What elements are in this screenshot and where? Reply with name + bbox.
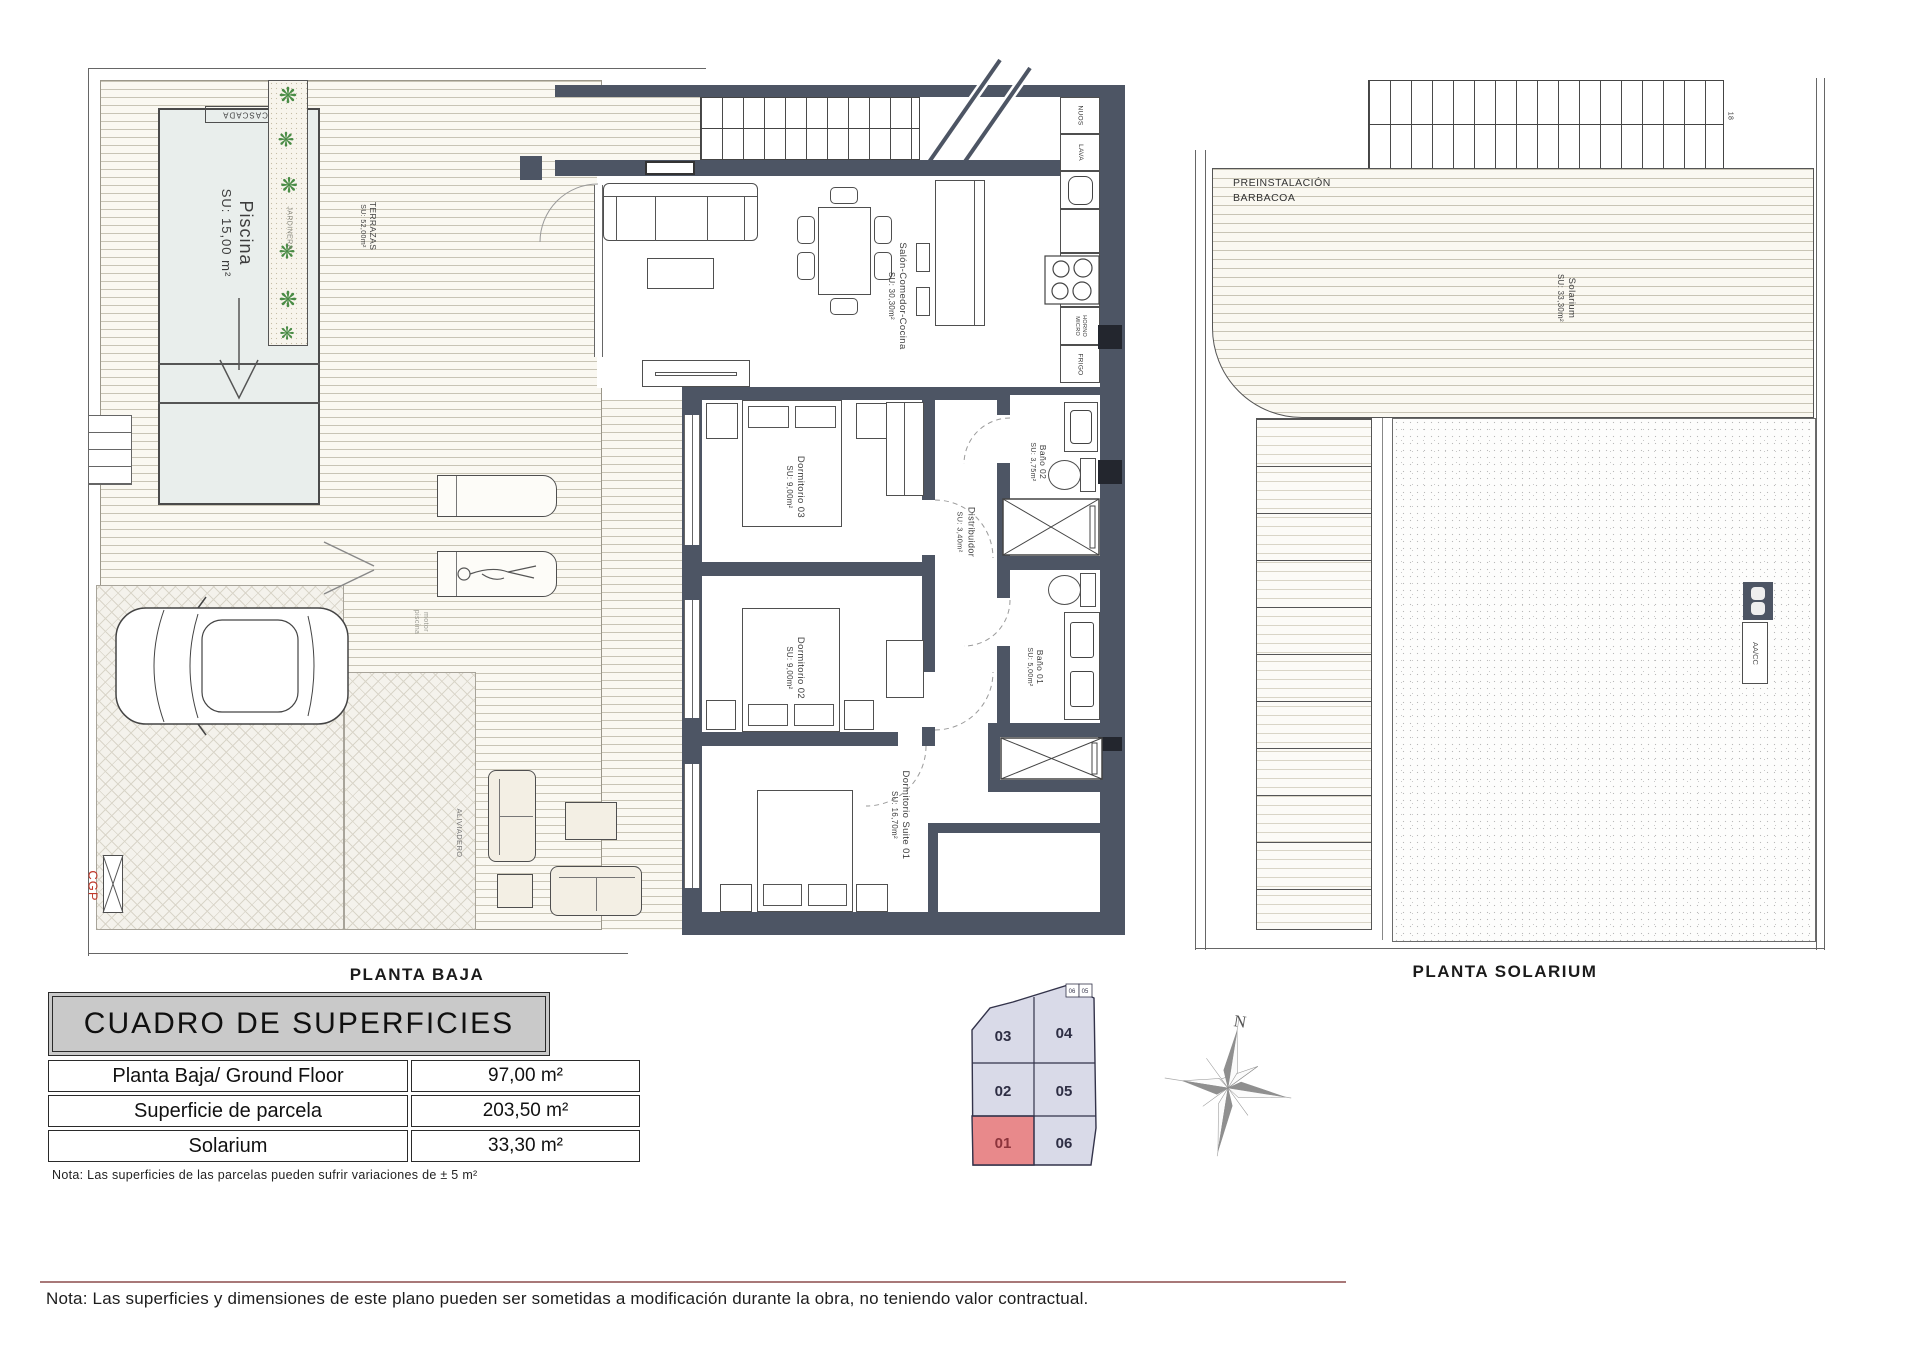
sun-lounger	[437, 475, 557, 517]
staircase-midline	[700, 128, 920, 129]
appliance-cell-secadora: NUOS	[1060, 97, 1100, 134]
dining-table	[818, 207, 871, 295]
living-south-window	[642, 360, 750, 387]
hob-icon	[1044, 255, 1100, 305]
room-label-solarium: Solarium SU: 33,30m²	[1555, 274, 1577, 322]
kitchen-counter-cell	[1060, 209, 1100, 253]
car-top-view	[112, 592, 352, 740]
pool-name: Piscina	[234, 200, 257, 265]
aliviadero-label: ALIVIADERO	[454, 808, 464, 857]
solarium-boundary-right	[1816, 78, 1817, 950]
dining-chair	[830, 298, 858, 315]
door-swing-arcs	[880, 360, 1140, 800]
nightstand	[706, 403, 738, 439]
solarium-boundary-left	[1195, 150, 1196, 950]
table-row-value: 97,00 m²	[411, 1060, 640, 1092]
exterior-steps	[88, 415, 132, 485]
pool-entry-arrow	[220, 298, 260, 406]
table-note: Nota: Las superficies de las parcelas pu…	[52, 1168, 478, 1182]
appliance-cell-horno: HORNO MICRO	[1060, 307, 1100, 345]
plot-boundary-left	[88, 68, 89, 956]
room-area: SU: 9,00m²	[784, 646, 794, 689]
plot-boundary-top	[88, 68, 706, 69]
room-area: SU: 33,30m²	[1555, 274, 1565, 322]
planta-solarium-title: PLANTA SOLARIUM	[1413, 962, 1598, 982]
person-figure	[452, 554, 552, 594]
unit-03: 03	[995, 1028, 1012, 1045]
terrace-area: SU: 52,00m²	[358, 204, 367, 248]
solarium-boundary-left-2	[1205, 150, 1206, 950]
nightstand	[720, 884, 752, 912]
planta-baja-title: PLANTA BAJA	[350, 965, 485, 985]
cgp-box-cross	[103, 855, 123, 913]
aacc-label: AA/CC	[1750, 642, 1759, 665]
sofa	[603, 183, 758, 241]
outdoor-table	[565, 802, 617, 840]
pillow	[794, 704, 834, 726]
solarium-deck	[1212, 168, 1814, 418]
unit-02: 02	[995, 1083, 1012, 1100]
unit-05: 05	[1056, 1083, 1073, 1100]
wall-column	[1098, 325, 1122, 349]
wall-living-top	[555, 160, 1062, 176]
plant-icon: ❋	[279, 83, 297, 109]
coffee-table	[647, 258, 714, 289]
kitchen-sink-cell	[1060, 171, 1100, 209]
plant-icon: ❋	[279, 324, 294, 345]
room-area: SU: 30,30m²	[886, 272, 896, 320]
table-row-value: 203,50 m²	[411, 1095, 640, 1127]
table-row-label: Superficie de parcela	[48, 1095, 408, 1127]
dining-chair	[797, 252, 815, 280]
nightstand	[844, 700, 874, 730]
stair-number-label: 18	[1725, 112, 1734, 121]
pillow	[808, 884, 847, 906]
room-label-salon: Salón-Comedor-Cocina SU: 30,30m²	[886, 242, 908, 349]
appliance-label: HORNO MICRO	[1073, 315, 1087, 337]
bedroom-window	[684, 415, 700, 545]
kitchen-stool	[916, 243, 930, 272]
table-row-label: Planta Baja/ Ground Floor	[48, 1060, 408, 1092]
barbacoa-label: PREINSTALACIÓN BARBACOA	[1233, 176, 1331, 205]
table-row-value: 33,30 m²	[411, 1130, 640, 1162]
unit-04: 04	[1056, 1025, 1073, 1042]
pillow	[748, 406, 789, 428]
wall-vent-box	[645, 161, 695, 175]
room-label-dormitorio-02: Dormitorio 02 SU: 9,00m²	[784, 637, 806, 699]
pergola-slats	[1256, 418, 1372, 930]
pool-area: SU: 15,00 m²	[217, 189, 234, 278]
appliance-label: LAVA	[1076, 144, 1083, 161]
room-area: SU: 9,00m²	[784, 465, 794, 508]
walkway-line	[1382, 418, 1383, 940]
pillow	[763, 884, 802, 906]
room-name: Dormitorio 03	[794, 456, 806, 518]
room-label-dormitorio-03: Dormitorio 03 SU: 9,00m²	[784, 456, 806, 518]
terrace-name: TERRAZAS	[367, 202, 378, 251]
wall-suite-closet-2	[928, 833, 938, 912]
aacc-unit	[1743, 582, 1773, 620]
pillow	[795, 406, 836, 428]
dining-chair	[797, 216, 815, 244]
plant-icon: ❋	[278, 128, 295, 153]
solarium-staircase-midline	[1368, 124, 1724, 125]
wall-south	[682, 912, 1125, 935]
unit-06: 06	[1056, 1135, 1073, 1152]
pool-motor-label: motor piscina	[412, 610, 430, 635]
bedroom-window	[684, 600, 700, 718]
outdoor-sofa-2	[550, 866, 642, 916]
wall-suite-closet	[928, 823, 1100, 833]
solarium-boundary-right-2	[1824, 78, 1825, 950]
dining-chair	[830, 187, 858, 204]
dining-chair	[874, 216, 892, 244]
table-row-label: Solarium	[48, 1130, 408, 1162]
nightstand	[706, 700, 736, 730]
cascada-label: CASCADA	[222, 111, 268, 120]
outdoor-sofa	[488, 770, 536, 862]
terrace-deck-top-strip	[540, 97, 700, 160]
plant-icon: ❋	[280, 174, 298, 199]
kitchen-island	[935, 180, 985, 326]
footer-note: Nota: Las superficies y dimensiones de e…	[46, 1289, 1088, 1309]
solarium-boundary-bottom	[1195, 948, 1825, 949]
terrace-deck-side	[602, 400, 682, 930]
pillow	[748, 704, 788, 726]
outdoor-side-table	[497, 874, 533, 908]
corner-plot-label: 06	[1069, 989, 1076, 995]
pool-label: Piscina SU: 15,00 m²	[217, 189, 257, 278]
solarium-staircase	[1368, 80, 1724, 170]
kitchen-stool	[916, 287, 930, 316]
deck-chevron-mark	[322, 540, 382, 596]
site-map: 06 05 03 04 02 05 01 06	[963, 978, 1113, 1178]
room-name: Dormitorio 02	[794, 637, 806, 699]
footer-divider-line	[40, 1281, 1346, 1283]
appliance-label: NUOS	[1076, 106, 1083, 126]
table-title: CUADRO DE SUPERFICIES	[48, 992, 550, 1056]
bedroom-window	[684, 764, 700, 888]
sink-icon	[1068, 176, 1093, 205]
nightstand	[856, 884, 888, 912]
room-name: Solarium	[1565, 278, 1577, 319]
bed	[757, 790, 853, 912]
plant-icon: ❋	[279, 287, 297, 313]
entry-door-arc	[538, 182, 602, 250]
appliance-cell-lavadora: LAVA	[1060, 134, 1100, 171]
floor-plan-sheet: CASCADA Piscina SU: 15,00 m² ❋ ❋ ❋ ❋ ❋ ❋…	[0, 0, 1920, 1356]
plot-boundary-bottom	[88, 953, 628, 954]
cgp-label: CGP	[84, 870, 101, 901]
aacc-box: AA/CC	[1742, 622, 1768, 684]
corner-plot-label: 05	[1082, 989, 1089, 995]
unit-01: 01	[995, 1135, 1012, 1152]
driveway-paving-2	[344, 672, 476, 930]
room-name: Salón-Comedor-Cocina	[896, 242, 908, 349]
terrace-label: TERRAZAS SU: 52,00m²	[358, 202, 378, 251]
wall-pillar	[520, 156, 542, 180]
planter-label: JARDINERA	[284, 206, 293, 249]
